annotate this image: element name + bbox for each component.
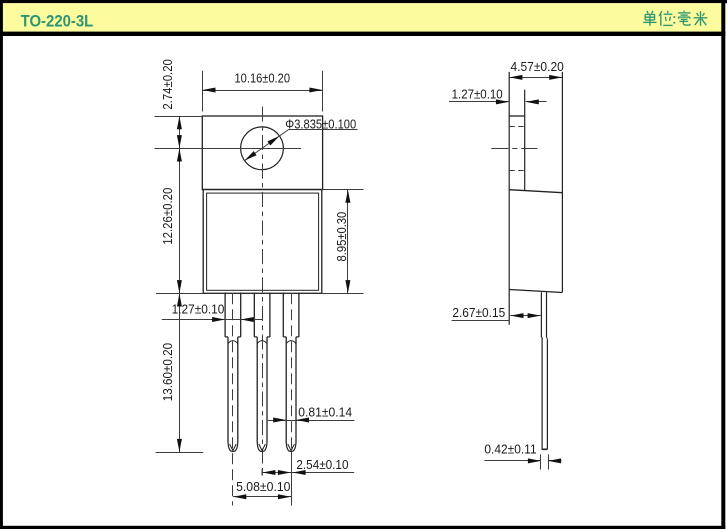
svg-text:2.74±0.20: 2.74±0.20 xyxy=(160,59,175,110)
svg-text:4.57±0.20: 4.57±0.20 xyxy=(511,59,564,74)
svg-text:2.54±0.10: 2.54±0.10 xyxy=(296,457,348,472)
svg-text:Φ3.835±0.100: Φ3.835±0.100 xyxy=(285,116,356,131)
svg-text:0.42±0.11: 0.42±0.11 xyxy=(484,441,536,456)
svg-text:8.95±0.30: 8.95±0.30 xyxy=(334,212,349,262)
svg-text:12.26±0.20: 12.26±0.20 xyxy=(160,188,175,245)
svg-text:13.60±0.20: 13.60±0.20 xyxy=(160,343,175,401)
svg-text:1.27±0.10: 1.27±0.10 xyxy=(172,302,225,317)
svg-text:0.81±0.14: 0.81±0.14 xyxy=(298,404,352,419)
svg-text:10.16±0.20: 10.16±0.20 xyxy=(235,71,291,86)
svg-text:TO-220-3L: TO-220-3L xyxy=(21,12,94,31)
svg-text:1.27±0.10: 1.27±0.10 xyxy=(452,86,503,101)
svg-text:5.08±0.10: 5.08±0.10 xyxy=(236,479,290,494)
svg-text:2.67±0.15: 2.67±0.15 xyxy=(452,305,505,320)
